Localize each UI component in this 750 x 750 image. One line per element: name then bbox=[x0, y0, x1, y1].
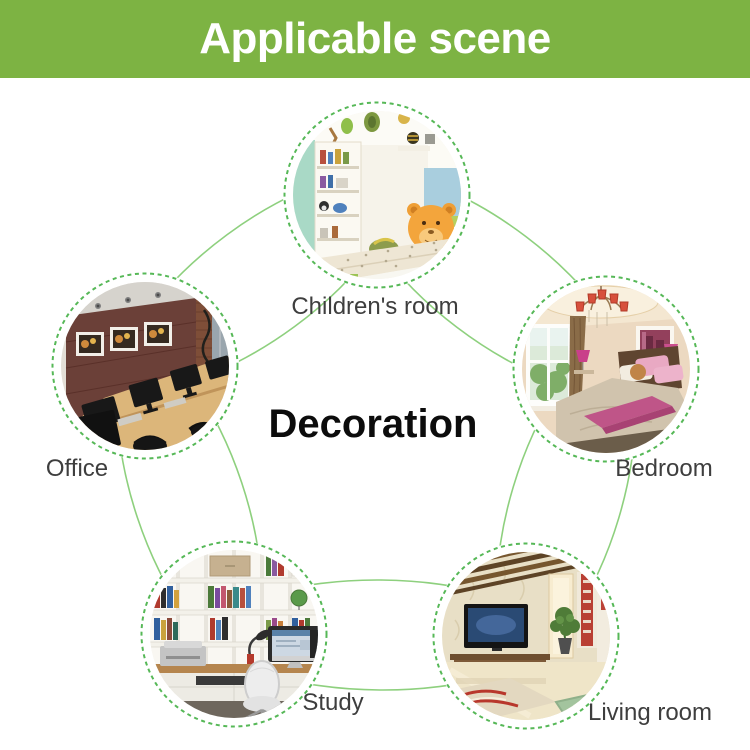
label-study: Study bbox=[302, 689, 363, 717]
cycle-diagram bbox=[0, 0, 750, 750]
label-bedroom: Bedroom bbox=[615, 455, 712, 483]
label-living-room: Living room bbox=[588, 699, 712, 727]
label-office: Office bbox=[46, 455, 108, 483]
page: Applicable scene bbox=[0, 0, 750, 750]
label-children-room: Children's room bbox=[291, 293, 458, 321]
tv bbox=[464, 604, 528, 651]
center-title: Decoration bbox=[269, 402, 478, 447]
globe bbox=[291, 590, 307, 606]
printer bbox=[160, 641, 206, 666]
bedroom-photo bbox=[522, 285, 690, 453]
bee-toy bbox=[407, 132, 419, 144]
